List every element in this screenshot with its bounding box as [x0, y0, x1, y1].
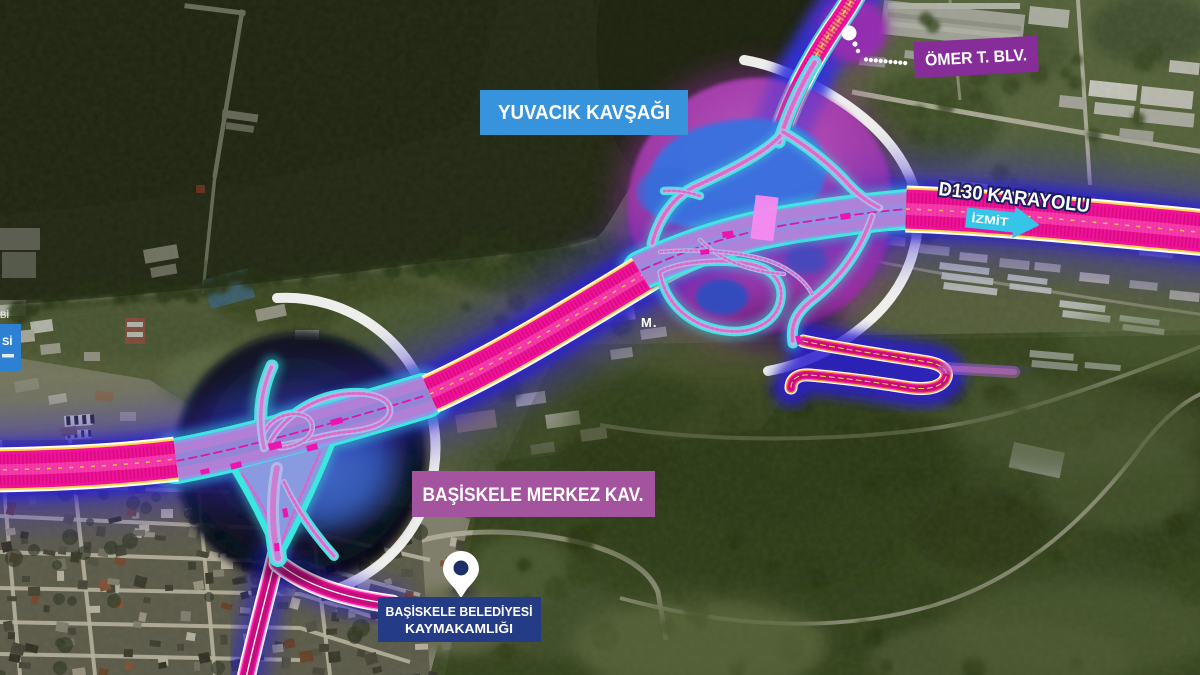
svg-text:KAYMAKAMLIĞI: KAYMAKAMLIĞI — [405, 621, 513, 636]
svg-text:M.: M. — [641, 315, 657, 330]
svg-text:Bİ: Bİ — [0, 310, 9, 320]
svg-text:YUVACIK KAVŞAĞI: YUVACIK KAVŞAĞI — [498, 100, 670, 124]
svg-text:Sİ: Sİ — [2, 335, 12, 348]
svg-text:BAŞİSKELE MERKEZ KAV.: BAŞİSKELE MERKEZ KAV. — [423, 485, 644, 506]
svg-text:BAŞİSKELE BELEDİYESİ: BAŞİSKELE BELEDİYESİ — [386, 604, 533, 619]
